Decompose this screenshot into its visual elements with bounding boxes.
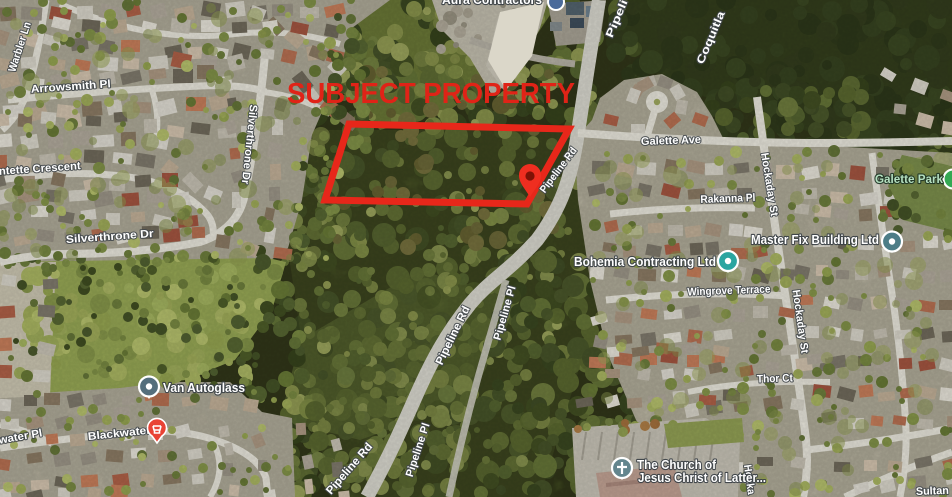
svg-text:SUBJECT PROPERTY: SUBJECT PROPERTY — [287, 78, 575, 110]
svg-text:Thor Ct: Thor Ct — [757, 372, 794, 385]
svg-text:Galette Ave: Galette Ave — [641, 134, 701, 148]
svg-text:Sultan: Sultan — [916, 485, 950, 497]
svg-text:Van Autoglass: Van Autoglass — [163, 381, 245, 395]
svg-text:Jesus Christ of Latter...: Jesus Christ of Latter... — [638, 470, 766, 485]
svg-text:Bohemia Contracting Ltd: Bohemia Contracting Ltd — [574, 254, 716, 269]
svg-text:Master Fix Building Ltd: Master Fix Building Ltd — [751, 232, 879, 247]
svg-text:Galette Park: Galette Park — [875, 174, 944, 186]
svg-text:Aura Contractors: Aura Contractors — [442, 0, 542, 7]
svg-text:Rakanna Pl: Rakanna Pl — [700, 192, 755, 206]
